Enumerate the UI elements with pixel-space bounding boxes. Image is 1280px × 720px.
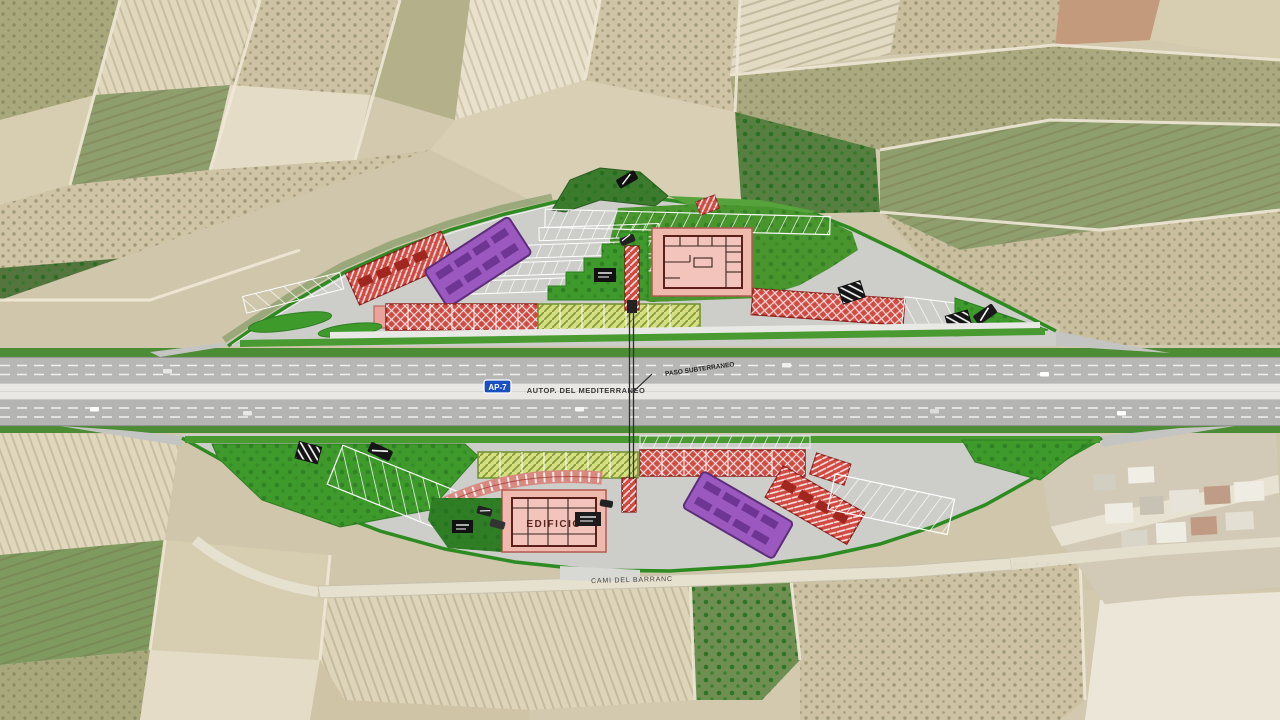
- aerial-site-plan: EDIFICIO CAMI: [0, 0, 1280, 720]
- truck-row-west: [374, 304, 538, 330]
- ap7-badge-text: AP-7: [488, 383, 507, 392]
- site-plan-svg: EDIFICIO CAMI: [0, 0, 1280, 720]
- north-building: [652, 228, 752, 296]
- car-row-yellow-north: [538, 304, 700, 330]
- ap7-badge: AP-7: [484, 380, 511, 393]
- south-building-label: EDIFICIO: [526, 519, 581, 530]
- underpass-south-end: [622, 478, 636, 512]
- north-info-sign: [594, 268, 616, 282]
- south-info-sign: [452, 520, 473, 533]
- underpass-north-end: [625, 246, 639, 313]
- north-carriageway: [0, 357, 1280, 383]
- motorway-name-label: AUTOP. DEL MEDITERRANEO: [527, 386, 646, 395]
- south-carriageway: [0, 400, 1280, 426]
- south-verge: [0, 426, 1280, 433]
